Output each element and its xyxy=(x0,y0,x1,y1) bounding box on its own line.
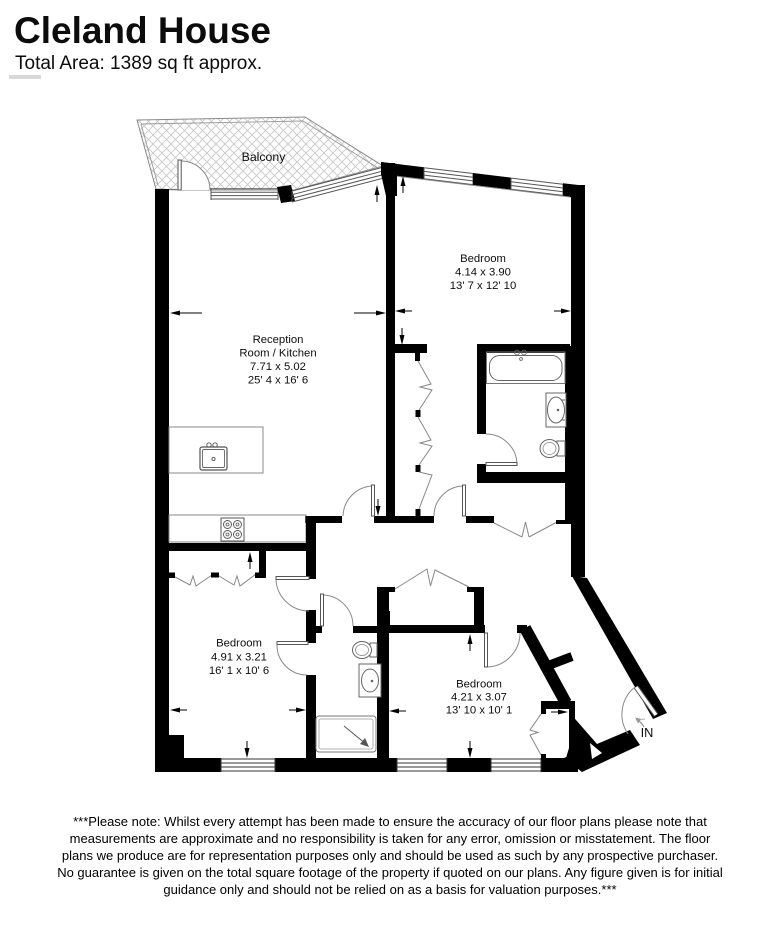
svg-text:4.21 x 3.07: 4.21 x 3.07 xyxy=(451,692,507,704)
svg-text:Balcony: Balcony xyxy=(242,150,287,164)
svg-text:13' 10 x 10' 1: 13' 10 x 10' 1 xyxy=(446,705,513,717)
svg-text:4.91 x 3.21: 4.91 x 3.21 xyxy=(211,652,267,664)
svg-text:IN: IN xyxy=(641,725,654,740)
svg-text:Reception: Reception xyxy=(253,334,304,346)
svg-text:25' 4 x 16' 6: 25' 4 x 16' 6 xyxy=(248,375,308,387)
svg-text:Room / Kitchen: Room / Kitchen xyxy=(239,348,316,360)
svg-text:4.14 x 3.90: 4.14 x 3.90 xyxy=(455,267,511,279)
svg-text:Bedroom: Bedroom xyxy=(216,638,262,650)
svg-text:13' 7 x 12' 10: 13' 7 x 12' 10 xyxy=(450,280,517,292)
svg-text:Bedroom: Bedroom xyxy=(456,679,502,691)
svg-text:16' 1 x 10' 6: 16' 1 x 10' 6 xyxy=(209,665,269,677)
svg-text:7.71 x 5.02: 7.71 x 5.02 xyxy=(250,361,306,373)
svg-text:Bedroom: Bedroom xyxy=(460,253,506,265)
